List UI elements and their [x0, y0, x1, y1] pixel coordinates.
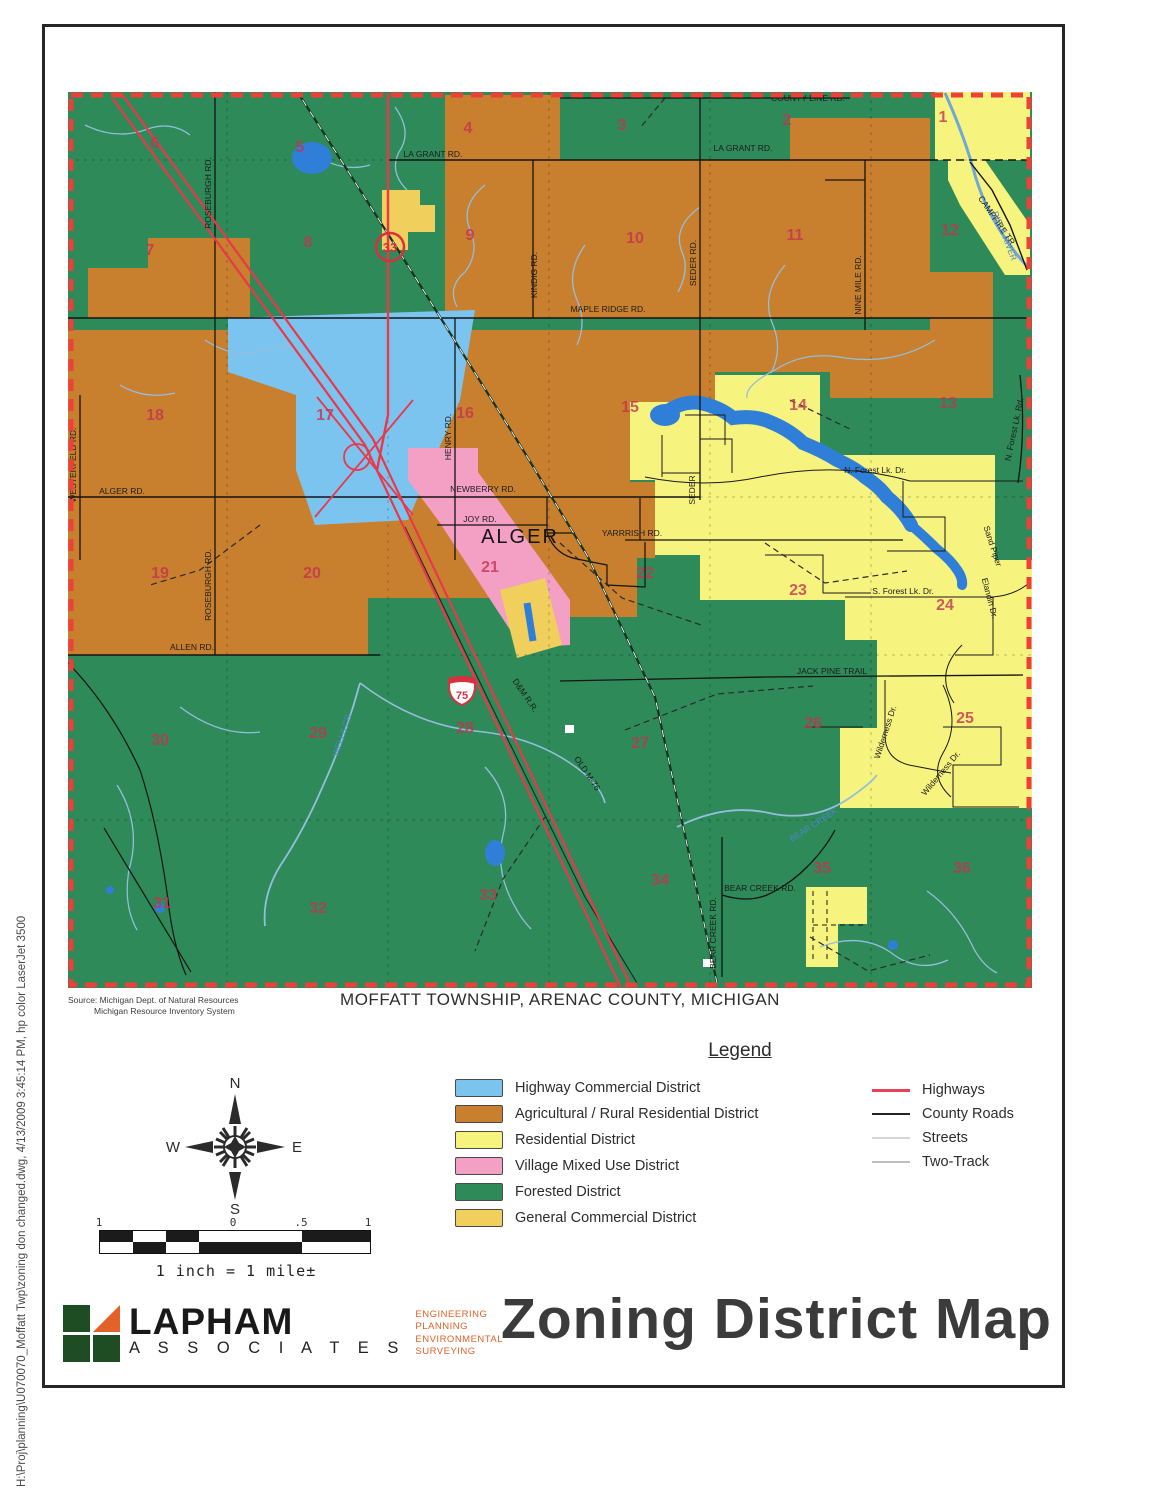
scale-tick: 1 — [96, 1216, 103, 1229]
section-number: 5 — [296, 139, 305, 156]
legend-line-sample — [872, 1113, 910, 1115]
compass-east-label: E — [292, 1139, 302, 1156]
section-number: 4 — [464, 120, 473, 137]
legend-line-sample — [872, 1137, 910, 1139]
compass-north-arrow — [229, 1094, 241, 1124]
sheet-title: Zoning District Map — [430, 1286, 1052, 1352]
legend-district-label: General Commercial District — [515, 1210, 696, 1226]
legend-district-label: Village Mixed Use District — [515, 1158, 679, 1174]
road-label: MAPLE RIDGE RD. — [570, 304, 645, 314]
legend-line-item: Streets — [872, 1126, 1014, 1150]
road-label: NINE MILE RD. — [853, 255, 863, 315]
road-label: KINDIG RD. — [529, 252, 539, 298]
svg-text:33: 33 — [383, 240, 397, 255]
scale-bar: 10.51 1 inch = 1 mile± — [96, 1216, 376, 1280]
legend-district-label: Agricultural / Rural Residential Distric… — [515, 1106, 758, 1122]
legend-district-item: Residential District — [455, 1127, 758, 1153]
road-label: LA GRANT RD. — [714, 143, 773, 153]
source-line-1: Source: Michigan Dept. of Natural Resour… — [68, 995, 239, 1006]
scale-tick: .5 — [294, 1216, 307, 1229]
legend-district-item: Forested District — [455, 1179, 758, 1205]
legend-title: Legend — [640, 1040, 840, 1062]
road-label: LA GRANT RD. — [404, 149, 463, 159]
compass-sunburst — [214, 1126, 256, 1168]
section-number: 17 — [316, 407, 334, 424]
road-label: ROSEBURGH RD. — [203, 549, 213, 621]
legend-lines: HighwaysCounty RoadsStreetsTwo-Track — [872, 1078, 1014, 1174]
section-number: 36 — [953, 860, 971, 877]
road-label: S. Forest Lk. Dr. — [872, 586, 933, 596]
section-number: 7 — [146, 242, 155, 259]
legend-line-sample — [872, 1161, 910, 1163]
legend-line-item: Two-Track — [872, 1150, 1014, 1174]
legend-line-label: County Roads — [922, 1106, 1014, 1122]
road-label: BEAR CREEK RD. — [724, 883, 796, 893]
section-number: 27 — [631, 735, 649, 752]
town-label-alger: ALGER — [481, 526, 559, 548]
section-number: 18 — [146, 407, 164, 424]
section-number: 22 — [636, 565, 654, 582]
section-number: 8 — [304, 234, 313, 251]
legend-line-label: Highways — [922, 1082, 985, 1098]
compass-west-arrow — [185, 1141, 213, 1153]
section-number: 2 — [783, 112, 792, 129]
legend-district-item: General Commercial District — [455, 1205, 758, 1231]
legend-line-label: Two-Track — [922, 1154, 989, 1170]
section-number: 34 — [651, 872, 669, 889]
legend-district-label: Residential District — [515, 1132, 635, 1148]
legend-swatch — [455, 1157, 503, 1175]
road-label: SEDER RD. — [688, 240, 698, 286]
legend-district-item: Agricultural / Rural Residential Distric… — [455, 1101, 758, 1127]
section-number: 32 — [309, 900, 327, 917]
road-label: ROSEBURGH RD. — [203, 157, 213, 229]
scale-caption: 1 inch = 1 mile± — [96, 1262, 376, 1280]
road-label: N. Forest Lk. Dr. — [844, 465, 906, 475]
plot-file-path: H:\Proj\planning\U070070_Moffatt Twp\zon… — [16, 617, 28, 1487]
scale-tick-labels: 10.51 — [96, 1216, 376, 1230]
legend-line-item: Highways — [872, 1078, 1014, 1102]
zoning-map: 33 75 6543217891011121817161514131920212… — [65, 85, 1035, 990]
legend-swatch — [455, 1105, 503, 1123]
compass-east-arrow — [257, 1141, 285, 1153]
road-label: YARRRISH RD. — [602, 528, 662, 538]
section-number: 26 — [804, 715, 822, 732]
section-number: 35 — [813, 860, 831, 877]
logo-company-sub: A S S O C I A T E S — [129, 1339, 405, 1358]
section-number: 10 — [626, 230, 644, 247]
svg-text:75: 75 — [456, 690, 468, 702]
legend-swatch — [455, 1079, 503, 1097]
compass-rose: N S W E — [165, 1072, 305, 1222]
section-number: 1 — [939, 109, 948, 126]
compass-south-arrow — [229, 1172, 241, 1200]
section-number: 13 — [939, 395, 957, 412]
section-number: 9 — [466, 227, 475, 244]
section-number: 21 — [481, 559, 499, 576]
source-note: Source: Michigan Dept. of Natural Resour… — [68, 995, 239, 1017]
road-label: SEDER — [687, 475, 697, 504]
legend-swatch — [455, 1131, 503, 1149]
road-label: BEAR CREEK RD. — [708, 897, 718, 969]
section-number: 31 — [153, 895, 171, 912]
legend-district-label: Highway Commercial District — [515, 1080, 700, 1096]
road-label: HENRY RD. — [443, 414, 453, 460]
section-number: 3 — [618, 117, 627, 134]
road-label: NEWBERRY RD. — [450, 484, 516, 494]
compass-north-label: N — [230, 1075, 241, 1092]
section-number: 20 — [303, 565, 321, 582]
legend-district-item: Highway Commercial District — [455, 1075, 758, 1101]
section-number: 30 — [151, 732, 169, 749]
section-number: 14 — [789, 397, 807, 414]
zoning-district-map-page: { "sidebar_text": "H:\\Proj\\planning\\U… — [0, 0, 1155, 1500]
section-number: 19 — [151, 565, 169, 582]
section-number: 15 — [621, 399, 639, 416]
legend-district-item: Village Mixed Use District — [455, 1153, 758, 1179]
lapham-logo-icon — [63, 1305, 121, 1363]
legend-line-label: Streets — [922, 1130, 968, 1146]
section-number: 6 — [151, 135, 160, 152]
map-subtitle: MOFFATT TOWNSHIP, ARENAC COUNTY, MICHIGA… — [280, 990, 840, 1010]
legend-districts: Highway Commercial DistrictAgricultural … — [455, 1075, 758, 1231]
logo-company-name: LAPHAM — [129, 1305, 405, 1338]
section-number: 11 — [787, 227, 804, 244]
legend-line-item: County Roads — [872, 1102, 1014, 1126]
scale-checker — [99, 1230, 371, 1254]
road-label: JACK PINE TRAIL — [797, 666, 867, 676]
legend-district-label: Forested District — [515, 1184, 621, 1200]
section-number: 28 — [456, 720, 474, 737]
legend-line-sample — [872, 1089, 910, 1092]
section-number: 16 — [456, 405, 474, 422]
section-number: 12 — [941, 222, 959, 239]
road-label: ALLEN RD. — [170, 642, 214, 652]
legend-swatch — [455, 1183, 503, 1201]
scale-tick: 1 — [365, 1216, 372, 1229]
source-line-2: Michigan Resource Inventory System — [68, 1006, 239, 1017]
section-number: 25 — [956, 710, 974, 727]
legend-swatch — [455, 1209, 503, 1227]
road-label: ALGER RD. — [99, 486, 145, 496]
compass-west-label: W — [166, 1139, 181, 1156]
scale-tick: 0 — [230, 1216, 237, 1229]
section-number: 23 — [789, 582, 807, 599]
road-label: JOY RD. — [463, 514, 496, 524]
section-number: 24 — [936, 597, 954, 614]
section-number: 29 — [309, 725, 327, 742]
section-number: 33 — [479, 887, 497, 904]
